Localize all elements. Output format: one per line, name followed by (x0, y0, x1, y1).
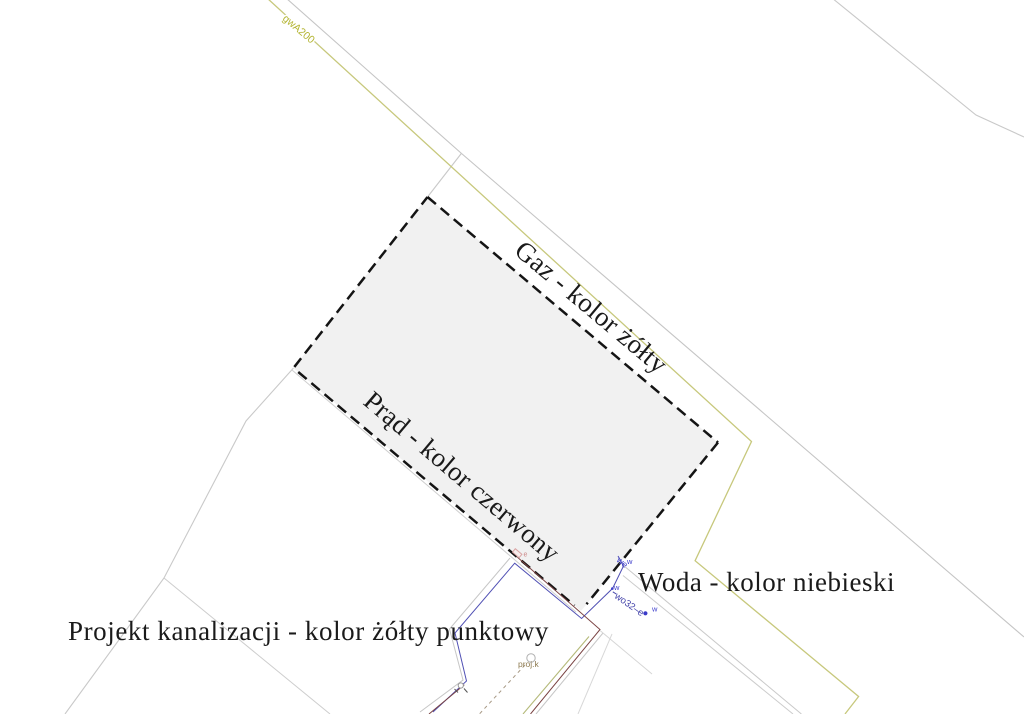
svg-text:proj.k: proj.k (518, 659, 540, 669)
svg-text:Woda - kolor niebieski: Woda - kolor niebieski (638, 567, 895, 597)
svg-text:w: w (626, 557, 633, 566)
svg-text:w: w (651, 605, 658, 614)
svg-text:Projekt kanalizacji - kolor żó: Projekt kanalizacji - kolor żółty punkto… (68, 616, 549, 646)
svg-text:e: e (524, 552, 528, 559)
